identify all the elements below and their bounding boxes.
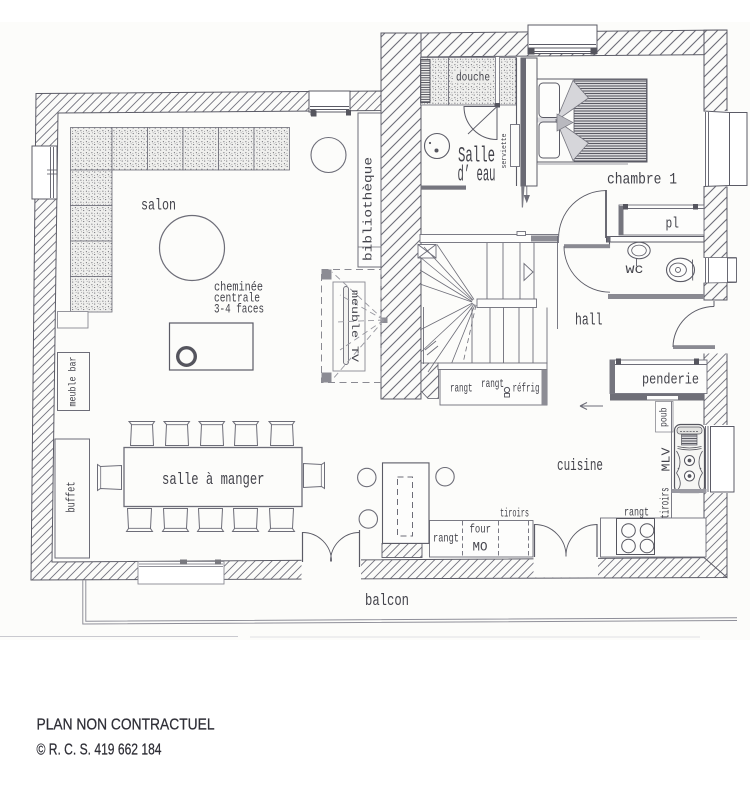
svg-text:rangt: rangt <box>481 378 504 391</box>
svg-text:tiroirs: tiroirs <box>500 507 529 521</box>
svg-text:meuble bar: meuble bar <box>68 357 80 407</box>
svg-text:MLV: MLV <box>660 447 674 472</box>
svg-text:d’ eau: d’ eau <box>458 163 496 188</box>
svg-text:PLAN NON CONTRACTUEL: PLAN NON CONTRACTUEL <box>37 717 215 734</box>
svg-text:bibliothèque: bibliothèque <box>363 157 376 261</box>
svg-text:chambre 1: chambre 1 <box>607 171 677 189</box>
svg-text:poub: poub <box>659 408 671 428</box>
svg-text:serviette: serviette <box>501 134 509 169</box>
svg-text:penderie: penderie <box>642 372 699 389</box>
svg-text:3-4 faces: 3-4 faces <box>214 303 264 317</box>
svg-text:tiroirs: tiroirs <box>659 488 673 519</box>
svg-text:salle à manger: salle à manger <box>162 470 265 489</box>
svg-text:meuble TV: meuble TV <box>348 290 360 362</box>
svg-text:cuisine: cuisine <box>557 456 603 475</box>
svg-text:salon: salon <box>141 197 176 215</box>
svg-text:douche: douche <box>456 71 490 85</box>
svg-text:wc: wc <box>626 262 644 278</box>
svg-text:hall: hall <box>575 311 603 330</box>
svg-text:rangt: rangt <box>450 383 473 396</box>
svg-text:rangt: rangt <box>433 532 459 546</box>
svg-text:four: four <box>470 523 492 537</box>
svg-text:© R. C. S. 419 662 184: © R. C. S. 419 662 184 <box>37 742 162 759</box>
svg-text:réfrig: réfrig <box>513 383 540 396</box>
svg-text:MO: MO <box>473 541 488 555</box>
svg-text:buffet: buffet <box>66 482 79 513</box>
svg-text:rangt: rangt <box>624 506 649 520</box>
svg-text:balcon: balcon <box>365 592 409 611</box>
svg-text:pl: pl <box>666 216 680 233</box>
